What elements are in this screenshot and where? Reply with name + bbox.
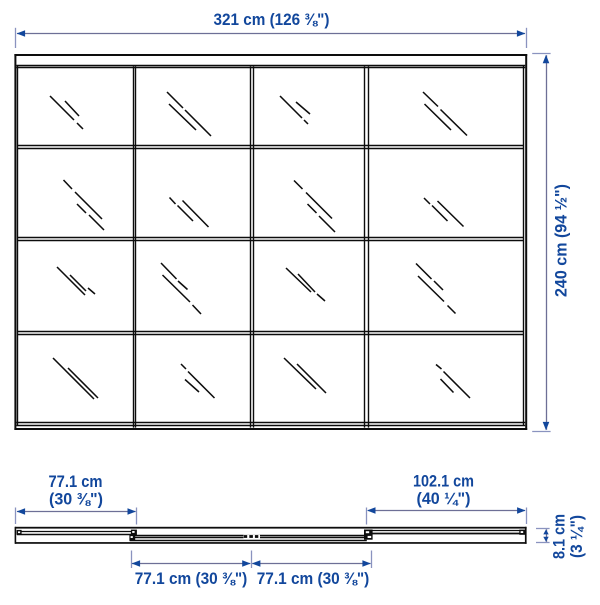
svg-text:102.1 cm: 102.1 cm: [413, 473, 474, 491]
svg-text:240 cm (94 ½"): 240 cm (94 ½"): [553, 184, 571, 297]
svg-text:77.1 cm (30 ⅜"): 77.1 cm (30 ⅜"): [135, 570, 248, 588]
svg-text:77.1 cm: 77.1 cm: [49, 473, 103, 491]
svg-text:(40 ¼"): (40 ¼"): [417, 490, 471, 508]
svg-text:77.1 cm (30 ⅜"): 77.1 cm (30 ⅜"): [257, 570, 370, 588]
svg-text:8.1 cm: 8.1 cm: [551, 514, 569, 559]
svg-text:321 cm (126 ⅜"): 321 cm (126 ⅜"): [214, 11, 330, 29]
svg-text:(30 ⅜"): (30 ⅜"): [49, 491, 103, 509]
svg-text:(3 ¼"): (3 ¼"): [568, 515, 586, 558]
